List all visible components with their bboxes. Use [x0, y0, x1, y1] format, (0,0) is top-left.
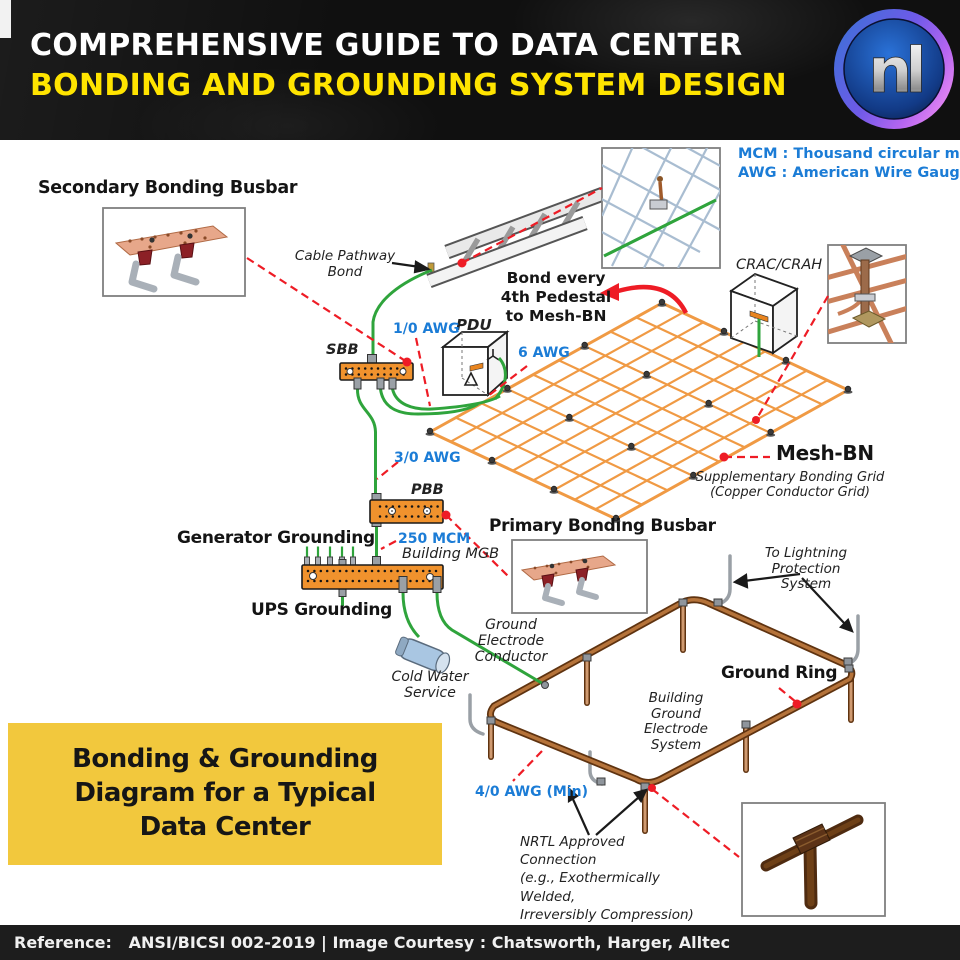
label-nrtl-connection: NRTL Approved Connection (e.g., Exotherm…	[520, 833, 705, 924]
label-250-mcm: 250 MCM	[398, 531, 470, 547]
inset-exothermic-weld	[742, 803, 885, 916]
label-building-ground-electrode: Building Ground Electrode System	[622, 691, 730, 754]
crac-box	[731, 274, 797, 353]
label-secondary-bonding-busbar: Secondary Bonding Busbar	[38, 178, 297, 198]
legend-mcm: MCM : Thousand circular mils	[738, 145, 956, 164]
abbreviation-legend: MCM : Thousand circular mils AWG : Ameri…	[738, 145, 956, 183]
label-pbb: PBB	[411, 482, 444, 499]
label-ups-grounding: UPS Grounding	[251, 600, 392, 620]
label-generator-grounding: Generator Grounding	[177, 528, 375, 548]
label-3-0-awg: 3/0 AWG	[394, 450, 461, 466]
label-4-0-awg-min: 4/0 AWG (Min)	[475, 784, 588, 800]
wire-sbb-to-pbb	[357, 389, 375, 494]
inset-pedestal-bond	[826, 243, 908, 345]
label-ground-ring: Ground Ring	[721, 663, 837, 683]
label-building-mgb: Building MGB	[402, 546, 499, 563]
label-supplementary-grid: Supplementary Bonding Grid (Copper Condu…	[695, 470, 885, 500]
label-mesh-bn: Mesh-BN	[776, 441, 874, 465]
infographic-page: COMPREHENSIVE GUIDE TO DATA CENTER BONDI…	[0, 0, 960, 960]
label-sbb: SBB	[326, 342, 359, 359]
inset-basket-tray-bond	[596, 144, 724, 268]
label-ground-electrode-conductor: Ground Electrode Conductor	[452, 617, 570, 666]
legend-awg: AWG : American Wire Gauge	[738, 164, 956, 183]
label-cold-water-service: Cold Water Service	[388, 669, 472, 701]
label-crac-crah: CRAC/CRAH	[736, 257, 822, 274]
cable-ladder-tray	[428, 194, 603, 281]
label-cable-pathway-bond: Cable Pathway Bond	[293, 249, 397, 280]
pdu-box	[443, 332, 507, 395]
label-bond-every-pedestal: Bond every 4th Pedestal to Mesh-BN	[496, 269, 616, 326]
title-callout-box: Bonding & Grounding Diagram for a Typica…	[8, 723, 442, 865]
label-pdu: PDU	[456, 317, 492, 334]
label-1-0-awg: 1/0 AWG	[393, 321, 460, 337]
inset-primary-busbar	[512, 540, 647, 613]
inset-secondary-busbar	[103, 208, 245, 296]
wire-mgb-to-coldwater	[403, 593, 419, 638]
label-6-awg: 6 AWG	[518, 345, 570, 361]
label-primary-bonding-busbar: Primary Bonding Busbar	[489, 516, 716, 536]
label-to-lightning-protection: To Lightning Protection System	[750, 546, 862, 593]
